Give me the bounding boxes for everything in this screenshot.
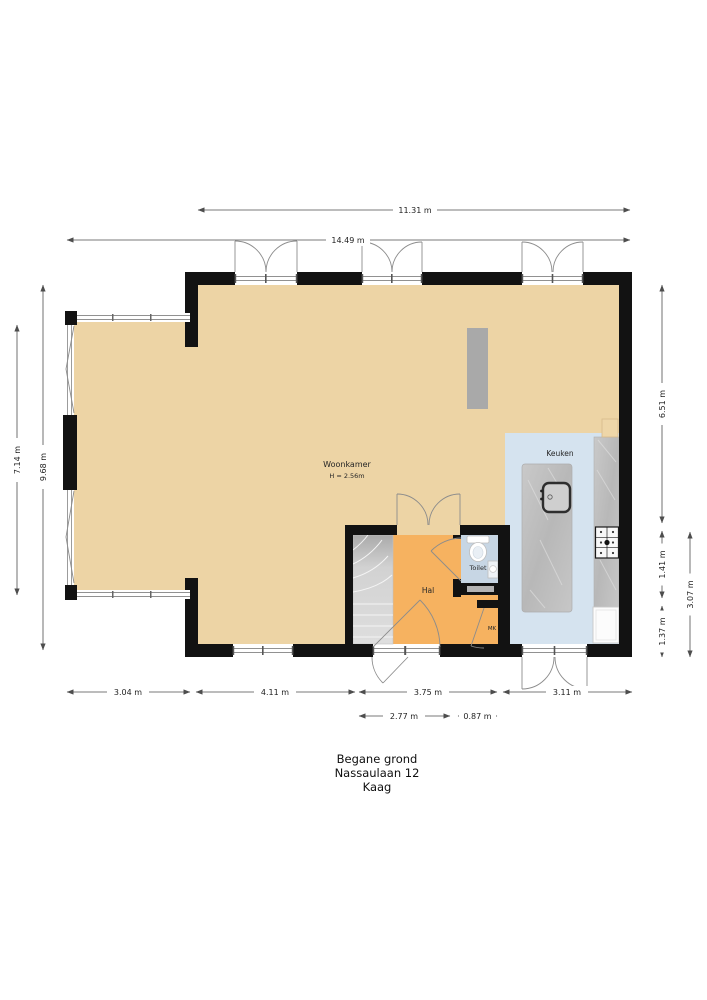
toilet-bottom-wall-inset <box>467 586 494 592</box>
french-doors-top-2 <box>362 242 422 272</box>
counter-right <box>594 437 619 612</box>
left-wall-upper <box>185 272 198 347</box>
dim-right-outer: 3.07 m <box>684 532 696 657</box>
hal-top-wall-left <box>345 525 397 535</box>
bay-window-bottom <box>77 590 190 599</box>
svg-text:3.04 m: 3.04 m <box>114 688 142 697</box>
bay-floor <box>74 322 198 590</box>
svg-text:3.11 m: 3.11 m <box>553 688 581 697</box>
floorplan-page: Woonkamer H = 2.56m Keuken Hal Toilet MK… <box>0 0 707 1000</box>
svg-text:1.41 m: 1.41 m <box>658 550 667 578</box>
dim-right-lower: 1.37 m <box>656 606 668 657</box>
bay-stub-topleft <box>65 311 77 325</box>
woonkamer-height-note: H = 2.56m <box>329 472 364 480</box>
dim-bottom-living: 4.11 m <box>196 686 355 698</box>
bottom-wall-seg <box>440 644 522 657</box>
tall-cabinet <box>602 419 618 437</box>
stairs-base <box>353 535 393 644</box>
svg-text:11.31 m: 11.31 m <box>398 206 431 215</box>
column-chimney <box>467 328 488 409</box>
bottom-wall-seg <box>293 644 373 657</box>
svg-text:7.14 m: 7.14 m <box>13 446 22 474</box>
bay-window-left-lower <box>65 490 74 585</box>
left-wall-lower <box>185 578 198 657</box>
woonkamer-label: Woonkamer <box>323 460 371 469</box>
svg-text:14.49 m: 14.49 m <box>331 236 364 245</box>
svg-text:3.07 m: 3.07 m <box>686 580 695 608</box>
svg-text:2.77 m: 2.77 m <box>390 712 418 721</box>
right-wall <box>619 272 632 657</box>
window-sill <box>235 273 298 284</box>
svg-text:4.11 m: 4.11 m <box>261 688 289 697</box>
dim-top-outer: 14.49 m <box>67 234 630 246</box>
svg-text:6.51 m: 6.51 m <box>658 390 667 418</box>
washbasin-icon <box>488 561 498 578</box>
sink-icon <box>540 483 570 512</box>
dim-bottom-sub-door: 2.77 m <box>359 710 450 722</box>
top-wall-seg <box>422 272 522 285</box>
dim-left-inner: 9.68 m <box>37 285 49 650</box>
bay-stub-bottomleft <box>65 585 77 600</box>
dim-left-outer: 7.14 m <box>11 325 23 595</box>
bay-window-top <box>77 313 190 322</box>
hal-left-wall <box>345 525 353 644</box>
floor-plan-svg: Woonkamer H = 2.56m Keuken Hal Toilet MK… <box>0 0 707 1000</box>
dim-bottom-sub-mk: 0.87 m <box>458 710 497 722</box>
window-sill <box>522 273 584 284</box>
mk-top-wall <box>477 600 510 608</box>
svg-text:9.68 m: 9.68 m <box>39 453 48 481</box>
bay-window-left-upper <box>65 325 74 415</box>
svg-text:1.37 m: 1.37 m <box>658 617 667 645</box>
title-floor: Begane grond <box>337 752 418 766</box>
cooktop-icon <box>596 527 619 558</box>
dim-right-mid: 1.41 m <box>656 531 668 598</box>
toilet-label: Toilet <box>468 564 486 572</box>
entrance-sill <box>373 645 441 656</box>
hal-label: Hal <box>422 586 434 595</box>
keuken-label: Keuken <box>546 449 574 458</box>
french-doors-top-3 <box>522 242 583 272</box>
dim-top-inner: 11.31 m <box>198 204 630 216</box>
kitchen-french-doors <box>522 657 587 689</box>
title-address: Nassaulaan 12 <box>335 766 420 780</box>
top-wall-seg <box>297 272 362 285</box>
bay-left-wall-mid <box>63 415 77 490</box>
dim-bottom-hal: 3.75 m <box>359 686 497 698</box>
svg-text:3.75 m: 3.75 m <box>414 688 442 697</box>
window-sill <box>233 645 294 656</box>
french-doors-top-1 <box>235 241 297 272</box>
title-city: Kaag <box>363 780 392 794</box>
window-sill <box>522 645 588 656</box>
plan-title: Begane grond Nassaulaan 12 Kaag <box>335 752 420 794</box>
bottom-wall-seg <box>587 644 632 657</box>
dim-bottom-bay: 3.04 m <box>67 686 190 698</box>
stairs <box>353 535 393 644</box>
appliance <box>593 607 619 643</box>
svg-text:0.87 m: 0.87 m <box>463 712 491 721</box>
dim-right-upper: 6.51 m <box>656 285 668 523</box>
mk-label: MK <box>488 626 497 632</box>
window-sill <box>362 273 423 284</box>
